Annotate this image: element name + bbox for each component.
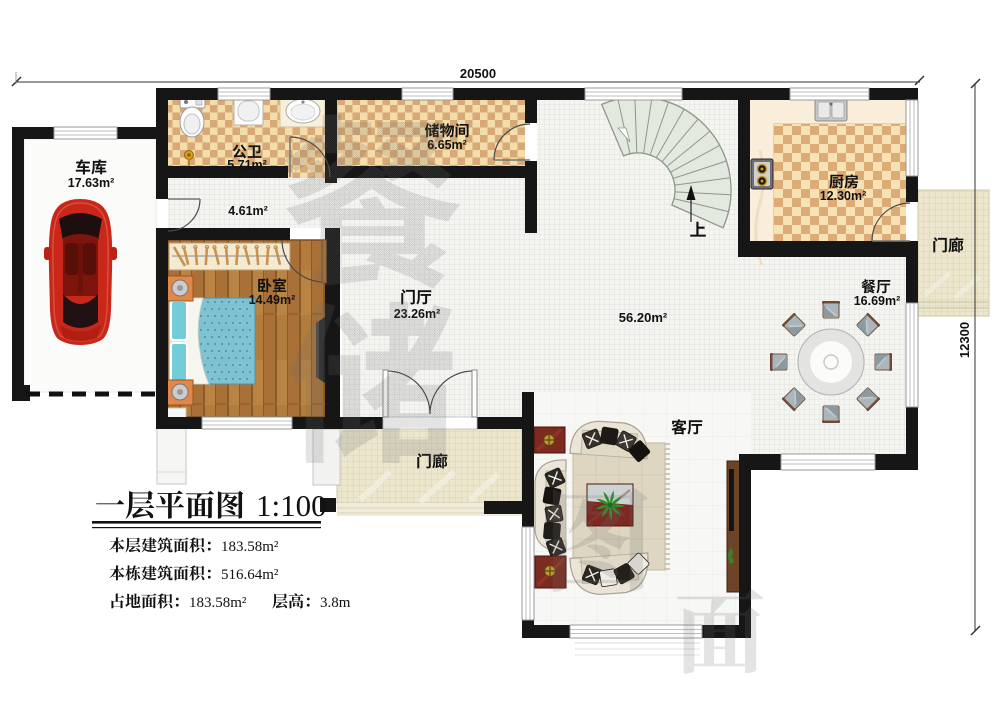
svg-text:4.61m²: 4.61m²	[228, 204, 268, 218]
svg-text:12300: 12300	[957, 322, 972, 358]
svg-text:1:100: 1:100	[256, 488, 327, 523]
svg-text:20500: 20500	[460, 66, 496, 81]
svg-text:56.20m²: 56.20m²	[619, 310, 668, 325]
svg-text:14.49m²: 14.49m²	[249, 293, 296, 307]
svg-text:183.58m²: 183.58m²	[221, 539, 279, 555]
svg-text:516.64m²: 516.64m²	[221, 567, 279, 583]
svg-text:183.58m²: 183.58m²	[189, 595, 247, 611]
svg-text:3.8m: 3.8m	[320, 595, 351, 611]
svg-text:5.71m²: 5.71m²	[227, 158, 267, 172]
svg-text:16.69m²: 16.69m²	[854, 294, 901, 308]
svg-text:12.30m²: 12.30m²	[820, 189, 867, 203]
svg-text:17.63m²: 17.63m²	[68, 176, 115, 190]
